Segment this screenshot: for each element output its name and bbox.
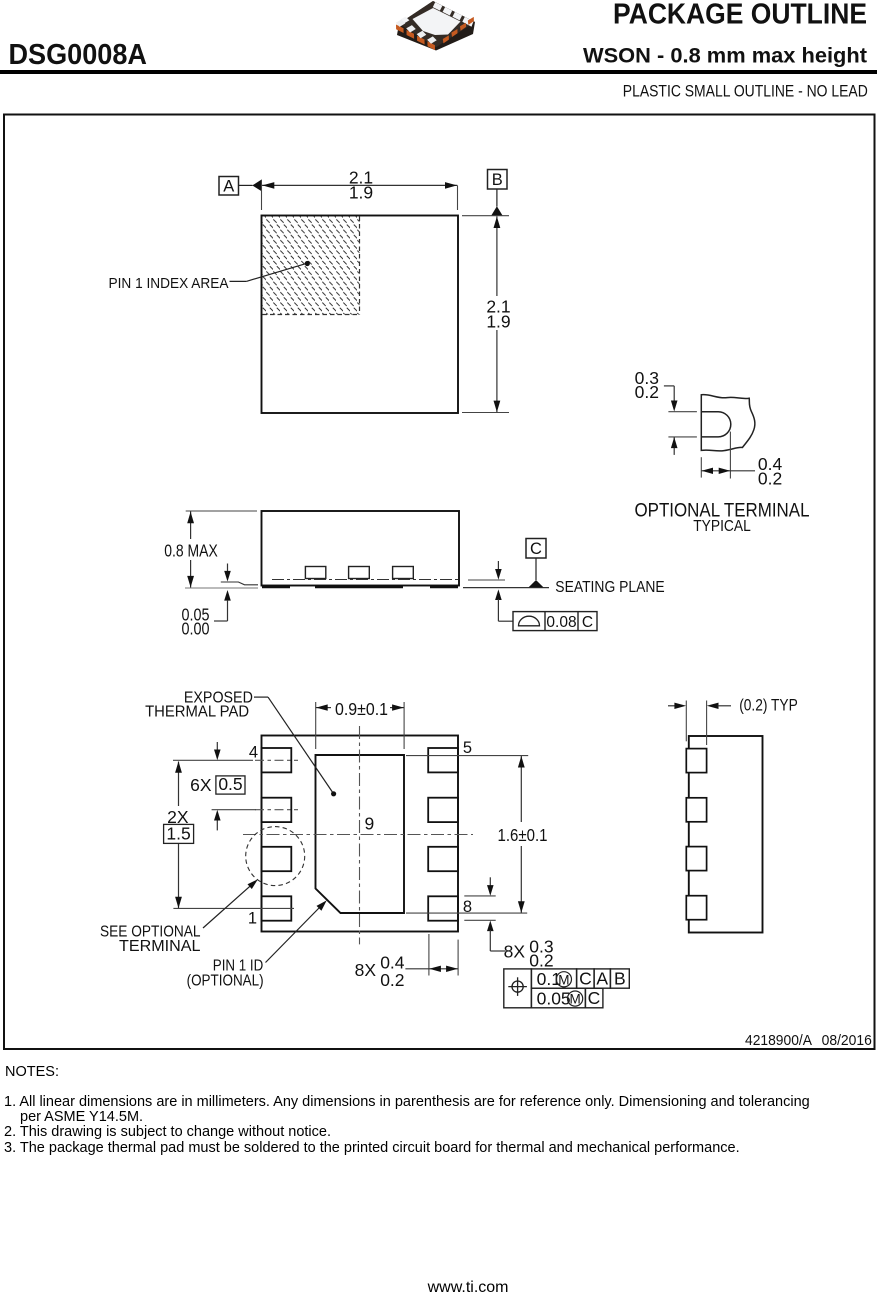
svg-text:C: C [588,988,601,1008]
svg-text:DSG0008A: DSG0008A [9,39,148,71]
svg-text:1: 1 [248,910,257,928]
svg-text:TERMINAL: TERMINAL [119,938,201,955]
svg-text:5: 5 [463,739,472,757]
svg-text:B: B [614,969,626,989]
svg-text:(OPTIONAL): (OPTIONAL) [187,972,264,989]
svg-text:C: C [582,614,593,631]
svg-text:TYPICAL: TYPICAL [693,518,751,535]
svg-text:C: C [530,540,542,558]
svg-text:8X: 8X [504,942,526,962]
svg-text:08/2016: 08/2016 [822,1032,872,1049]
svg-text:SEATING PLANE: SEATING PLANE [555,579,664,596]
svg-text:A: A [223,178,234,196]
svg-text:1.6±0.1: 1.6±0.1 [498,825,548,845]
svg-text:1.9: 1.9 [349,183,373,203]
svg-text:PIN 1 INDEX AREA: PIN 1 INDEX AREA [109,275,229,292]
svg-text:0.9±0.1: 0.9±0.1 [335,699,388,719]
svg-text:1.5: 1.5 [166,823,190,843]
svg-text:0.2: 0.2 [380,970,404,990]
svg-text:C: C [579,969,592,989]
svg-text:0.8 MAX: 0.8 MAX [164,540,218,560]
svg-text:PACKAGE OUTLINE: PACKAGE OUTLINE [613,0,867,30]
svg-text:M: M [569,992,580,1007]
svg-text:B: B [492,171,503,189]
svg-text:1.9: 1.9 [486,312,510,332]
svg-text:9: 9 [365,814,375,834]
svg-text:4: 4 [249,744,258,762]
svg-text:(0.2) TYP: (0.2) TYP [739,697,798,715]
svg-text:A: A [596,969,608,989]
svg-text:THERMAL PAD: THERMAL PAD [145,703,249,720]
svg-text:8X: 8X [355,960,377,980]
svg-text:0.1: 0.1 [537,969,561,989]
svg-text:0.2: 0.2 [758,469,782,489]
svg-text:6X: 6X [190,775,212,795]
svg-text:0.00: 0.00 [182,619,210,639]
svg-text:0.08: 0.08 [546,614,576,631]
svg-text:0.2: 0.2 [635,382,659,402]
svg-text:4218900/A: 4218900/A [745,1032,812,1049]
svg-text:0.2: 0.2 [529,951,553,971]
svg-text:0.5: 0.5 [218,774,242,794]
svg-text:PLASTIC SMALL OUTLINE - NO LEA: PLASTIC SMALL OUTLINE - NO LEAD [623,81,868,100]
svg-text:0.05: 0.05 [537,988,571,1008]
svg-text:WSON - 0.8 mm max height: WSON - 0.8 mm max height [583,45,867,68]
svg-text:M: M [558,972,569,987]
